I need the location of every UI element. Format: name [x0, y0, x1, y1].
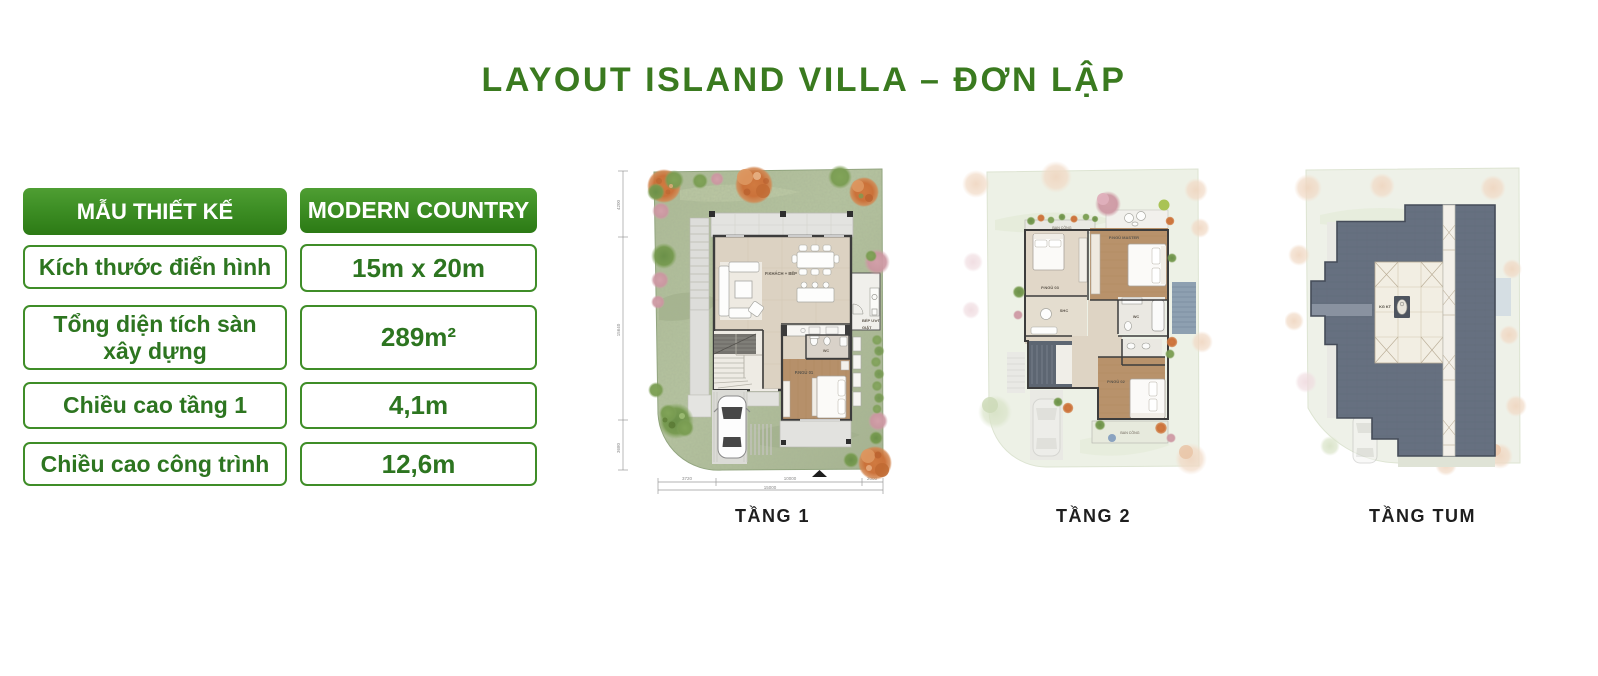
svg-text:WC: WC: [1133, 315, 1140, 319]
svg-text:15000: 15000: [764, 485, 777, 490]
svg-text:15640: 15640: [616, 323, 621, 336]
svg-text:WC: WC: [823, 349, 830, 353]
svg-text:BAN CÔNG: BAN CÔNG: [1120, 430, 1139, 435]
svg-text:P.NGỦ 01: P.NGỦ 01: [795, 370, 814, 375]
svg-text:3680: 3680: [616, 442, 621, 453]
svg-text:3720: 3720: [682, 476, 693, 481]
svg-text:GIẶT: GIẶT: [862, 325, 872, 330]
svg-text:P.NGỦ MASTER: P.NGỦ MASTER: [1109, 235, 1139, 240]
svg-text:10000: 10000: [784, 476, 797, 481]
svg-text:BẾP ƯớT: BẾP ƯớT: [862, 318, 880, 323]
svg-text:P.NGỦ 03: P.NGỦ 03: [1041, 285, 1059, 290]
svg-text:4200: 4200: [616, 199, 621, 210]
svg-text:SHC: SHC: [1060, 308, 1069, 313]
svg-text:P.KHÁCH + BẾP: P.KHÁCH + BẾP: [765, 271, 797, 276]
svg-text:KG KT: KG KT: [1379, 305, 1391, 309]
svg-text:P.NGỦ 02: P.NGỦ 02: [1107, 379, 1125, 384]
